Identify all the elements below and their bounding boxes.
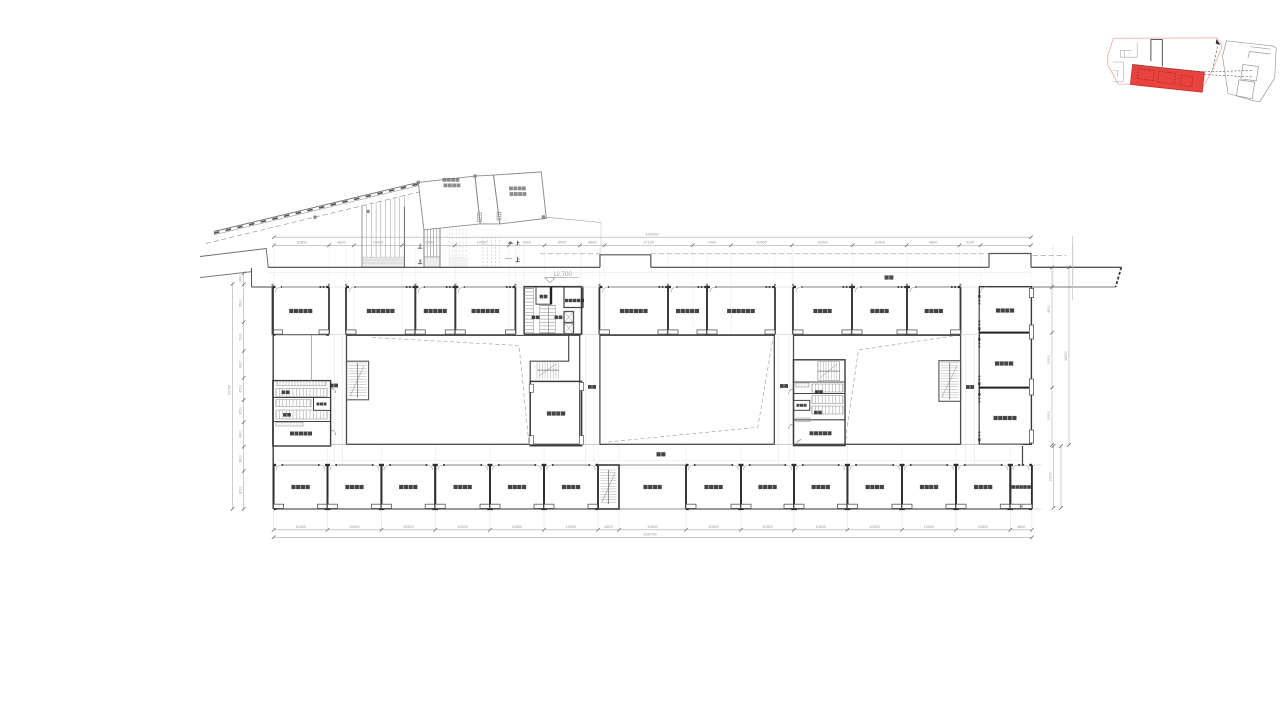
svg-text:10500: 10500	[566, 525, 577, 529]
svg-text:10500: 10500	[512, 525, 523, 529]
svg-text:140950: 140950	[645, 232, 659, 237]
svg-text:10500: 10500	[924, 525, 935, 529]
svg-text:4800: 4800	[337, 241, 345, 245]
svg-text:7400: 7400	[708, 241, 716, 245]
svg-text:10500: 10500	[817, 241, 828, 245]
svg-text:10300: 10300	[295, 525, 306, 529]
svg-text:10500: 10500	[477, 241, 488, 245]
svg-text:8500: 8500	[239, 486, 243, 494]
svg-text:5100: 5100	[239, 333, 243, 341]
svg-text:10400: 10400	[874, 241, 885, 245]
svg-text:54700: 54700	[1064, 351, 1068, 361]
svg-text:10500: 10500	[815, 525, 826, 529]
svg-text:10400: 10400	[423, 241, 434, 245]
svg-text:10500: 10500	[647, 525, 658, 529]
svg-text:10800: 10800	[296, 241, 307, 245]
svg-text:10500: 10500	[869, 525, 880, 529]
svg-text:54700: 54700	[228, 385, 232, 395]
svg-text:9100: 9100	[966, 241, 974, 245]
svg-text:4900: 4900	[239, 361, 243, 369]
svg-text:9500: 9500	[1047, 305, 1051, 313]
svg-text:10500: 10500	[1047, 355, 1051, 365]
svg-text:4800: 4800	[588, 241, 596, 245]
svg-text:10500: 10500	[457, 525, 468, 529]
svg-text:10500: 10500	[762, 525, 773, 529]
svg-text:17100: 17100	[643, 241, 654, 245]
svg-text:4600: 4600	[239, 431, 243, 439]
svg-text:10500: 10500	[978, 525, 989, 529]
svg-text:3800: 3800	[1017, 525, 1025, 529]
svg-text:1860: 1860	[239, 275, 243, 283]
svg-text:4900: 4900	[239, 455, 243, 463]
svg-text:10500: 10500	[349, 525, 360, 529]
svg-text:10500: 10500	[1047, 411, 1051, 421]
svg-text:3700: 3700	[239, 407, 243, 415]
svg-text:10400: 10400	[373, 241, 384, 245]
svg-text:10500: 10500	[403, 525, 414, 529]
svg-text:6900: 6900	[558, 241, 566, 245]
svg-text:4800: 4800	[929, 241, 937, 245]
svg-text:6900: 6900	[523, 241, 531, 245]
svg-text:4700: 4700	[239, 385, 243, 393]
svg-text:10500: 10500	[756, 241, 767, 245]
svg-text:17200: 17200	[1049, 472, 1053, 482]
svg-text:9600: 9600	[239, 299, 243, 307]
svg-text:4800: 4800	[604, 525, 612, 529]
svg-text:150700: 150700	[643, 532, 657, 537]
svg-text:10500: 10500	[708, 525, 719, 529]
